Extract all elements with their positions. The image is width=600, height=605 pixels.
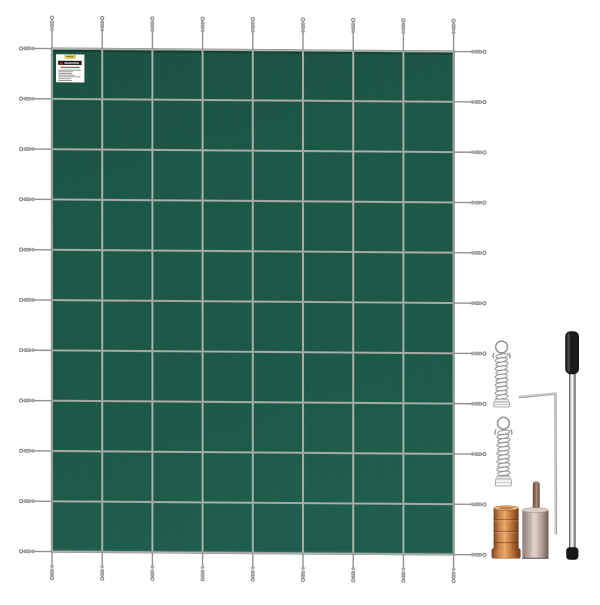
svg-text:WARNING: WARNING <box>64 61 80 65</box>
